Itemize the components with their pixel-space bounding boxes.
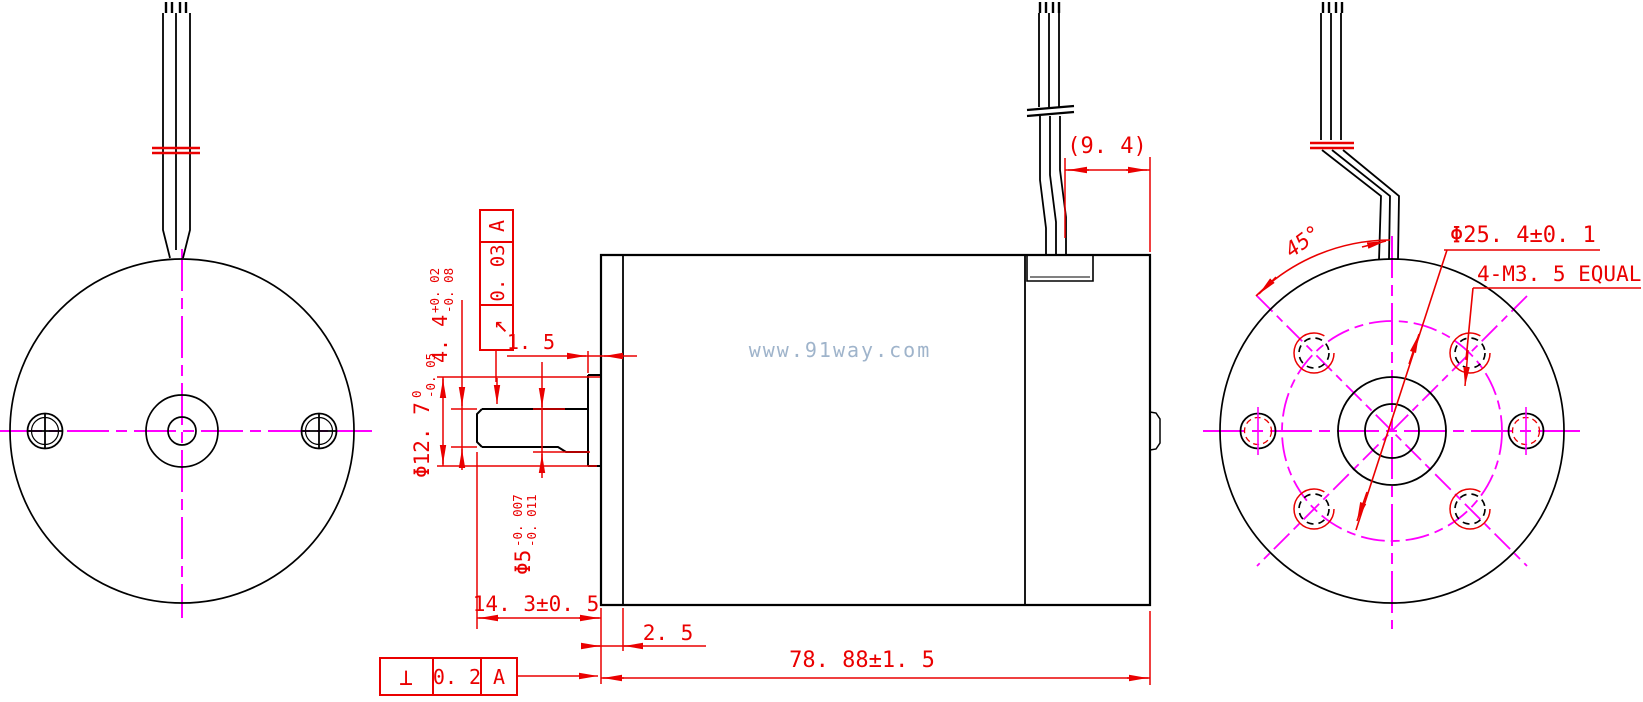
watermark: www.91way.com bbox=[749, 338, 932, 362]
runout-datum-label: A bbox=[485, 220, 509, 232]
boss-diameter-upper-tol: 0 bbox=[409, 390, 424, 398]
dimension-shaft-diameter: Φ5 -0. 007 -0. 011 bbox=[510, 362, 590, 575]
dimension-boss-protrusion: 1. 5 bbox=[507, 330, 637, 373]
shaft-diameter-lower-tol: -0. 011 bbox=[524, 494, 539, 547]
runout-control-frame: A 0. 03 ↗ bbox=[480, 210, 513, 404]
motor-drawing-canvas: (9. 4) 1. 5 A 0. 03 ↗ 4. 4 +0. 02 -0. 08… bbox=[0, 0, 1643, 702]
rear-bearing-boss bbox=[1150, 412, 1160, 450]
mounting-holes-label: 4-M3. 5 EQUAL bbox=[1477, 262, 1641, 286]
bolt-circle-label: Φ25. 4±0. 1 bbox=[1450, 223, 1596, 248]
rear-screw-left bbox=[27, 413, 63, 449]
body-length-label: 78. 88±1. 5 bbox=[789, 648, 935, 673]
perpendicularity-symbol: ⊥ bbox=[399, 665, 413, 691]
rear-end-view bbox=[0, 2, 372, 618]
dimension-flange-width: 2. 5 bbox=[584, 608, 706, 651]
shaft-flat-upper-tol: +0. 02 bbox=[427, 268, 442, 313]
shaft-flat-lower-tol: -0. 08 bbox=[441, 268, 456, 313]
runout-symbol: ↗ bbox=[484, 320, 512, 334]
terminal-block bbox=[1027, 255, 1093, 281]
perpendicularity-datum-label: A bbox=[493, 665, 505, 689]
front-wire-break-mark bbox=[1310, 143, 1354, 148]
motor-body-outline bbox=[601, 255, 1150, 605]
side-view bbox=[477, 2, 1160, 605]
side-wire-leads bbox=[1027, 2, 1074, 256]
dimension-shaft-length: 14. 3±0. 5 bbox=[473, 452, 601, 684]
shaft-length-label: 14. 3±0. 5 bbox=[473, 592, 599, 616]
front-end-view bbox=[1203, 2, 1581, 629]
boss-protrusion-label: 1. 5 bbox=[507, 330, 555, 354]
engineering-drawing: (9. 4) 1. 5 A 0. 03 ↗ 4. 4 +0. 02 -0. 08… bbox=[0, 0, 1643, 702]
shaft-diameter-value: Φ5 bbox=[511, 550, 535, 575]
dimension-boss-diameter: Φ12. 7 0 -0. 05 bbox=[409, 353, 600, 478]
dimension-hole-angle: 45° bbox=[1256, 220, 1390, 296]
threaded-hole-top-left bbox=[1294, 333, 1334, 373]
perpendicularity-tolerance-label: 0. 2 bbox=[433, 665, 481, 689]
runout-tolerance-label: 0. 03 bbox=[487, 244, 509, 301]
rear-screw-right bbox=[301, 413, 337, 449]
boss-diameter-lower-tol: -0. 05 bbox=[423, 353, 438, 398]
dimension-wire-stub: (9. 4) bbox=[1065, 134, 1150, 252]
perpendicularity-control-frame: ⊥ 0. 2 A bbox=[380, 658, 598, 695]
front-wire-leads bbox=[1321, 2, 1399, 260]
boss-diameter-value: Φ12. 7 bbox=[410, 402, 434, 478]
shaft-diameter-upper-tol: -0. 007 bbox=[510, 494, 525, 547]
hole-angle-label: 45° bbox=[1280, 220, 1325, 262]
flange-width-label: 2. 5 bbox=[643, 621, 694, 645]
dimension-mounting-holes: 4-M3. 5 EQUAL bbox=[1465, 262, 1641, 386]
wire-stub-label: (9. 4) bbox=[1067, 134, 1146, 159]
rear-wire-leads bbox=[163, 2, 190, 258]
